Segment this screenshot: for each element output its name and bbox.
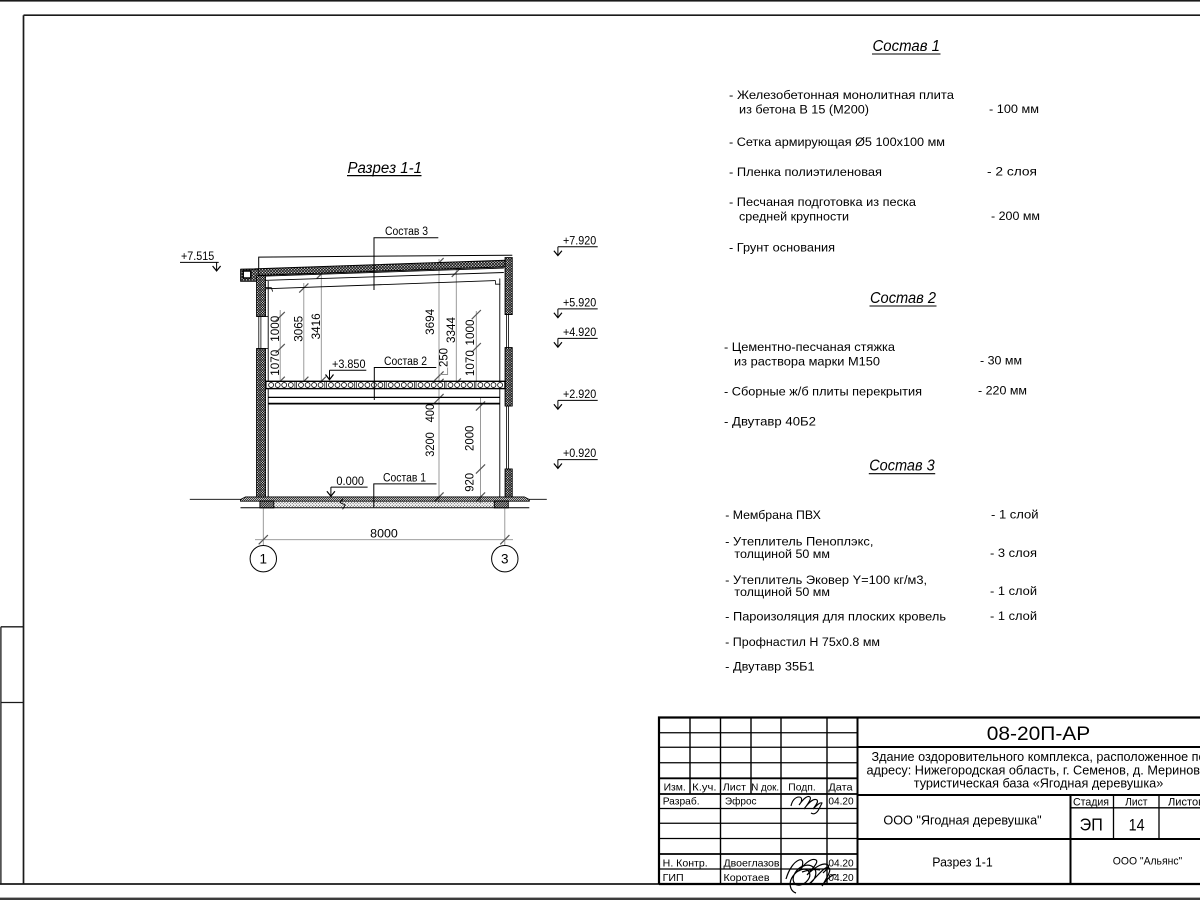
svg-text:3: 3 [501,552,509,567]
svg-text:толщиной 50 мм: толщиной 50 мм [734,547,830,561]
svg-text:Лист: Лист [1125,796,1147,808]
svg-text:- Двутавр 40Б2: - Двутавр 40Б2 [724,415,816,429]
svg-text:- Железобетонная монолитная п: - Железобетонная монолитная плита [729,88,954,102]
svg-text:1070: 1070 [270,350,282,376]
svg-text:+4.920: +4.920 [563,325,596,339]
svg-text:из бетона В 15 (М200): из бетона В 15 (М200) [739,103,869,117]
svg-text:адресу: Нижегородская область,: адресу: Нижегородская область, г. Семено… [867,764,1200,778]
svg-text:Разрез 1-1: Разрез 1-1 [932,855,992,869]
svg-text:- 2 слоя: - 2 слоя [987,165,1037,179]
svg-text:+3.850: +3.850 [332,357,366,371]
svg-text:N док.: N док. [751,782,779,794]
svg-text:Подп.: Подп. [788,782,815,794]
svg-text:2000: 2000 [465,426,477,451]
svg-text:- 1 слой: - 1 слой [990,584,1037,598]
svg-text:04.20: 04.20 [828,858,853,870]
svg-text:Состав 1: Состав 1 [873,38,941,55]
svg-text:- 1 слой: - 1 слой [991,508,1039,522]
svg-text:8000: 8000 [370,527,398,541]
svg-text:920: 920 [464,473,476,492]
svg-text:3344: 3344 [446,316,458,343]
svg-text:08-20П-АР: 08-20П-АР [987,723,1091,745]
svg-text:+2.920: +2.920 [563,387,596,401]
svg-text:средней крупности: средней крупности [739,210,849,224]
svg-text:- 200 мм: - 200 мм [991,209,1040,223]
svg-text:Дата: Дата [828,782,852,794]
svg-text:250: 250 [439,348,451,367]
svg-text:Эфрос: Эфрос [725,796,757,808]
svg-text:- Грунт основания: - Грунт основания [729,241,835,255]
svg-text:Состав 2: Состав 2 [384,356,427,368]
svg-text:- Цементно-песчаная стяжка: - Цементно-песчаная стяжка [724,340,895,354]
svg-text:ООО "Альянс": ООО "Альянс" [1113,855,1182,867]
svg-text:1070: 1070 [465,350,477,376]
svg-text:400: 400 [425,404,437,423]
svg-text:04.20: 04.20 [828,796,853,808]
svg-text:ООО "Ягодная деревушка": ООО "Ягодная деревушка" [883,814,1041,828]
svg-text:Состав 2: Состав 2 [870,290,936,307]
svg-text:+7.515: +7.515 [181,249,214,263]
svg-text:из раствора марки М150: из раствора марки М150 [734,355,880,369]
svg-text:1: 1 [260,552,268,567]
svg-text:Двоеглазов: Двоеглазов [724,858,780,870]
svg-text:3694: 3694 [425,308,437,335]
svg-text:- Сетка армирующая Ø5 100х100: - Сетка армирующая Ø5 100х100 мм [729,135,945,149]
svg-text:толщиной 50 мм: толщиной 50 мм [734,585,830,599]
svg-text:Стадия: Стадия [1073,796,1109,808]
svg-text:туристическая база «Ягодная де: туристическая база «Ягодная деревушка» [914,777,1164,791]
svg-text:- Песчаная подготовка из песка: - Песчаная подготовка из песка [729,195,916,209]
svg-text:ЭП: ЭП [1080,815,1103,835]
svg-text:Состав 3: Состав 3 [385,226,428,238]
svg-text:+7.920: +7.920 [563,233,596,247]
svg-text:Коротаев: Коротаев [724,872,770,884]
svg-text:Н. Контр.: Н. Контр. [663,858,708,870]
svg-text:- 100 мм: - 100 мм [989,102,1039,116]
svg-text:Состав 1: Состав 1 [383,472,426,484]
svg-text:Разраб.: Разраб. [663,796,700,808]
svg-text:+0.920: +0.920 [563,446,596,460]
svg-text:- Пленка полиэтиленовая: - Пленка полиэтиленовая [729,165,882,179]
svg-text:+5.920: +5.920 [563,295,596,309]
svg-text:0.000: 0.000 [336,474,364,488]
svg-text:14: 14 [1129,817,1145,835]
svg-text:- Мембрана ПВХ: - Мембрана ПВХ [725,508,821,522]
svg-text:Разрез 1-1: Разрез 1-1 [348,160,423,177]
svg-text:К.уч.: К.уч. [692,782,716,794]
svg-text:Здание оздоровительного компле: Здание оздоровительного комплекса, распо… [872,750,1200,764]
svg-text:ГИП: ГИП [663,872,684,884]
svg-text:1000: 1000 [270,316,282,342]
svg-text:Листов: Листов [1168,796,1200,808]
svg-text:Изм.: Изм. [664,782,686,794]
svg-text:04.20: 04.20 [828,872,853,884]
svg-text:- 3 слоя: - 3 слоя [990,546,1037,560]
svg-text:- 220 мм: - 220 мм [978,384,1027,398]
svg-text:- Профнастил Н 75х0.8 мм: - Профнастил Н 75х0.8 мм [725,635,880,649]
svg-text:- 30 мм: - 30 мм [980,354,1022,368]
svg-text:- Пароизоляция для плоских кро: - Пароизоляция для плоских кровель [725,609,946,623]
svg-text:- 1 слой: - 1 слой [990,609,1037,623]
svg-text:Состав 3: Состав 3 [869,458,935,475]
svg-text:1000: 1000 [465,320,477,346]
svg-text:- Двутавр 35Б1: - Двутавр 35Б1 [725,660,815,674]
svg-text:3200: 3200 [425,432,437,457]
svg-text:3065: 3065 [294,316,306,342]
svg-text:3416: 3416 [311,313,323,339]
svg-text:- Сборные ж/б плиты перекрытия: - Сборные ж/б плиты перекрытия [724,385,922,399]
svg-text:Лист: Лист [723,782,746,794]
